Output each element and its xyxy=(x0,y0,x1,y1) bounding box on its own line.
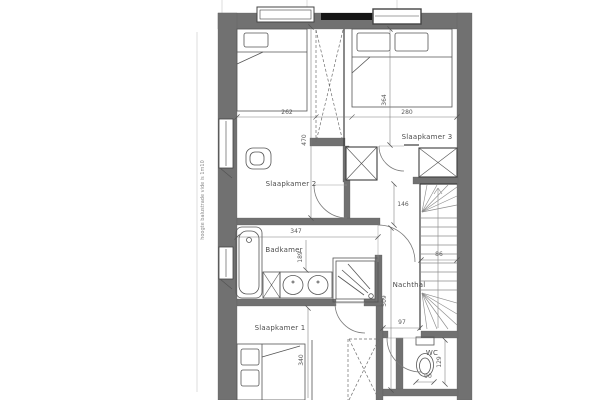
bed-slaapkamer2 xyxy=(237,29,307,111)
washing-machine xyxy=(263,272,280,298)
room-label-slaapkamer1: Slaapkamer 1 xyxy=(255,324,306,332)
shower xyxy=(333,258,378,302)
wall-wc-top-stub xyxy=(383,331,388,338)
room-label-nachthal: Nachthal xyxy=(393,281,426,289)
floorplan-canvas: 262 470 280 364 347 189 146 509 86 97 34… xyxy=(0,0,600,400)
dim-86: 86 xyxy=(435,251,443,258)
winders-bottom xyxy=(422,293,457,329)
wall-right xyxy=(457,13,472,400)
dim-129: 129 xyxy=(436,356,443,368)
dim-364: 364 xyxy=(381,94,388,106)
dim-262: 262 xyxy=(281,109,293,116)
bed-slaapkamer1 xyxy=(237,340,312,400)
bed-slaapkamer3 xyxy=(352,29,452,107)
void-bottom xyxy=(348,339,379,400)
dim-90: 90 xyxy=(424,373,432,380)
wall-left xyxy=(218,13,237,400)
door-slaapkamer3 xyxy=(379,146,404,171)
room-label-wc: WC xyxy=(426,349,438,357)
windows xyxy=(219,7,421,289)
washbasins xyxy=(280,272,332,298)
dim-97: 97 xyxy=(398,319,406,326)
room-label-slaapkamer3: Slaapkamer 3 xyxy=(402,133,453,141)
door-slaapkamer1 xyxy=(335,303,365,333)
door-slaapkamer2 xyxy=(314,185,347,218)
wall-wc-bottom xyxy=(383,389,458,396)
floorplan-drawing: 262 470 280 364 347 189 146 509 86 97 34… xyxy=(0,0,600,400)
dim-280: 280 xyxy=(401,109,413,116)
dim-470: 470 xyxy=(301,134,308,146)
bathtub xyxy=(236,227,262,298)
dim-347: 347 xyxy=(290,228,302,235)
wall-shaftB-bottom xyxy=(413,177,458,184)
room-label-badkamer: Badkamer xyxy=(265,246,302,254)
wall-hall-vertical xyxy=(376,306,383,400)
shaft-boxes xyxy=(346,147,457,180)
wall-badkamer-top xyxy=(237,218,380,225)
wall-badkamer-right xyxy=(375,255,382,302)
dim-509: 509 xyxy=(381,295,388,307)
void-top xyxy=(316,30,343,142)
side-note: hoogte balustrade vide is 1m10 xyxy=(200,160,206,240)
window-top-right xyxy=(373,9,421,24)
dim-146: 146 xyxy=(397,201,409,208)
wall-badkamer-bottom-left xyxy=(237,299,336,306)
chair-slaapkamer2 xyxy=(246,148,271,169)
winders-top xyxy=(422,185,457,212)
door-badkamer xyxy=(378,225,415,262)
wall-void-bottom xyxy=(310,138,345,146)
dim-340: 340 xyxy=(298,354,305,366)
wall-wc-left xyxy=(396,338,403,393)
room-label-slaapkamer2: Slaapkamer 2 xyxy=(266,180,317,188)
beam-over-void xyxy=(321,13,372,20)
